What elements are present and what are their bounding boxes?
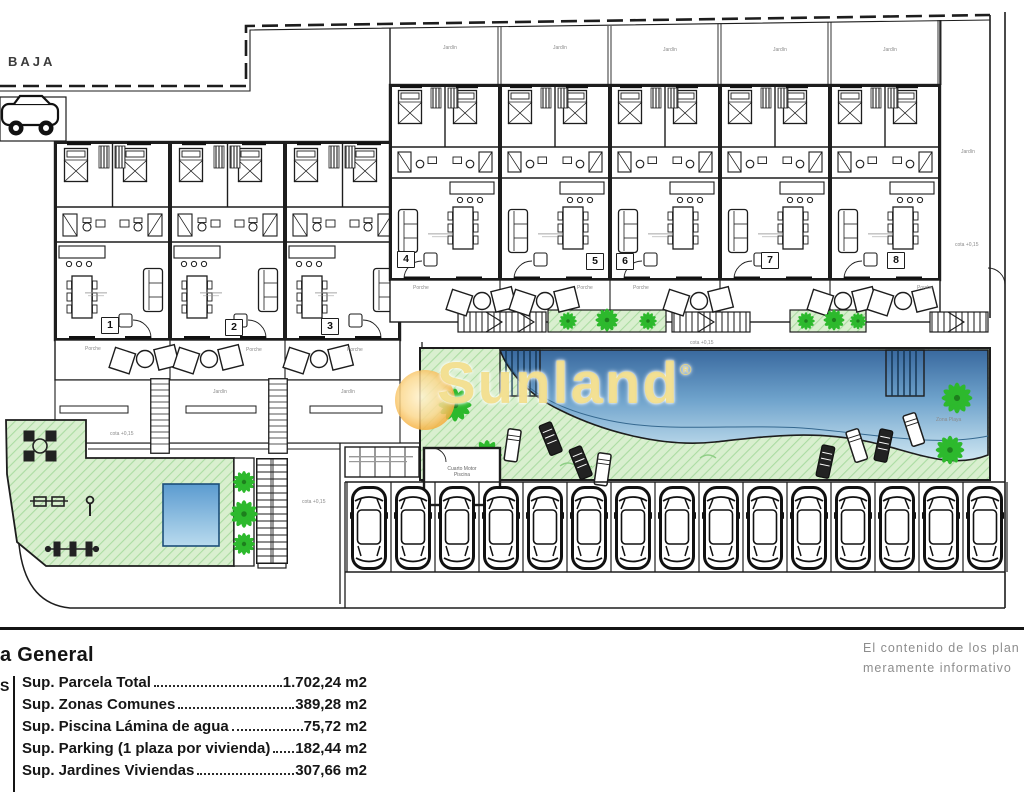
apartment-unit (56, 142, 169, 339)
spa-pool (163, 484, 219, 546)
legend-row-value: 182,44 m2 (295, 740, 367, 757)
dot-leader (154, 685, 282, 687)
parked-car (966, 488, 1004, 569)
parked-car (526, 488, 564, 569)
apartment-unit (286, 142, 399, 339)
apartment-unit (391, 85, 499, 280)
meter-cabinet (345, 447, 419, 477)
apartment-unit (721, 85, 829, 280)
legend-row-label: Sup. Parcela Total (22, 674, 151, 691)
parked-car (702, 488, 740, 569)
legend-row-value: 389,28 m2 (295, 696, 367, 713)
apartment-unit (611, 85, 719, 280)
parked-car (350, 488, 388, 569)
legend-row: Sup. Piscina Lámina de agua75,72 m2 (22, 718, 367, 740)
dot-leader (178, 707, 294, 709)
disclaimer-line: meramente informativo (863, 658, 1024, 678)
parked-car (878, 488, 916, 569)
legend-side-fragment: S (0, 678, 9, 694)
right-apartment-block (390, 85, 940, 280)
legend-panel: a General S Sup. Parcela Total1.702,24 m… (0, 627, 1024, 800)
site-plan-page: BAJA 1 2 3 4 5 6 7 8 Sunland® Cuarto Mot… (0, 0, 1024, 800)
parked-car (570, 488, 608, 569)
parked-car (834, 488, 872, 569)
legend-row: Sup. Parcela Total1.702,24 m2 (22, 674, 367, 696)
parking-cars (347, 482, 1007, 572)
parked-car (394, 488, 432, 569)
legend-row-label: Sup. Parking (1 plaza por vivienda) (22, 740, 270, 757)
left-apartment-block (55, 142, 400, 340)
legend-row-value: 1.702,24 m2 (283, 674, 367, 691)
disclaimer-line: El contenido de los plan (863, 638, 1024, 658)
legend-rows: Sup. Parcela Total1.702,24 m2 Sup. Zonas… (22, 674, 367, 784)
street-parked-car (0, 96, 66, 141)
legend-row: Sup. Parking (1 plaza por vivienda)182,4… (22, 740, 367, 762)
legend-divider (13, 676, 15, 792)
legend-title: a General (0, 644, 94, 667)
apartment-unit (171, 142, 284, 339)
parked-car (438, 488, 476, 569)
apartment-unit (831, 85, 939, 280)
legend-row-label: Sup. Jardines Viviendas (22, 762, 194, 779)
disclaimer: El contenido de los plan meramente infor… (863, 638, 1024, 678)
legend-row-label: Sup. Piscina Lámina de agua (22, 718, 229, 735)
legend-row-value: 307,66 m2 (295, 762, 367, 779)
parked-car (614, 488, 652, 569)
parking-row (345, 482, 1007, 608)
parked-car (658, 488, 696, 569)
dot-leader (197, 773, 294, 775)
parked-car (922, 488, 960, 569)
legend-row: Sup. Zonas Comunes389,28 m2 (22, 696, 367, 718)
dot-leader (273, 751, 294, 753)
legend-row: Sup. Jardines Viviendas307,66 m2 (22, 762, 367, 784)
right-block-gardens-top (390, 20, 941, 85)
apartment-unit (501, 85, 609, 280)
legend-row-value: 75,72 m2 (304, 718, 367, 735)
legend-row-label: Sup. Zonas Comunes (22, 696, 175, 713)
parked-car (790, 488, 828, 569)
dot-leader (232, 729, 303, 731)
parked-car (746, 488, 784, 569)
site-plan-drawing (0, 0, 1024, 627)
parked-car (482, 488, 520, 569)
